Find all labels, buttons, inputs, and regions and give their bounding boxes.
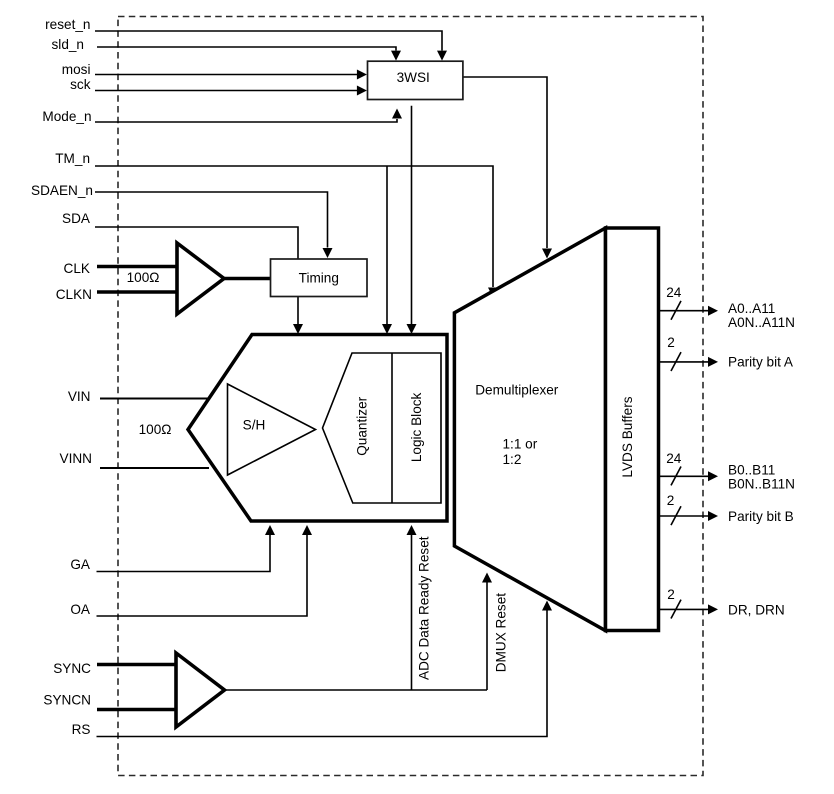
svg-text:CLK: CLK bbox=[64, 261, 90, 276]
svg-text:Mode_n: Mode_n bbox=[42, 109, 91, 124]
svg-text:SDAEN_n: SDAEN_n bbox=[31, 183, 93, 198]
svg-text:VINN: VINN bbox=[60, 451, 92, 466]
svg-text:S/H: S/H bbox=[243, 417, 266, 432]
svg-text:Quantizer: Quantizer bbox=[354, 396, 369, 455]
svg-text:B0N..B11N: B0N..B11N bbox=[728, 477, 795, 492]
svg-text:3WSI: 3WSI bbox=[397, 70, 430, 85]
svg-text:GA: GA bbox=[70, 557, 91, 572]
svg-text:OA: OA bbox=[70, 602, 91, 617]
svg-text:Demultiplexer: Demultiplexer bbox=[475, 382, 559, 397]
svg-text:2: 2 bbox=[667, 587, 675, 602]
svg-text:2: 2 bbox=[667, 335, 675, 350]
svg-text:Parity bit A: Parity bit A bbox=[728, 355, 794, 370]
svg-text:DMUX Reset: DMUX Reset bbox=[493, 593, 508, 673]
svg-text:SYNCN: SYNCN bbox=[43, 693, 91, 708]
svg-text:1:1 or: 1:1 or bbox=[503, 437, 538, 452]
svg-text:Logic Block: Logic Block bbox=[409, 392, 424, 462]
svg-text:24: 24 bbox=[666, 285, 682, 300]
svg-text:RS: RS bbox=[72, 722, 91, 737]
svg-text:mosi: mosi bbox=[62, 62, 91, 77]
svg-text:24: 24 bbox=[666, 451, 682, 466]
svg-text:VIN: VIN bbox=[68, 389, 91, 404]
svg-text:1:2: 1:2 bbox=[503, 452, 522, 467]
svg-text:A0..A11: A0..A11 bbox=[728, 301, 775, 316]
svg-text:reset_n: reset_n bbox=[45, 17, 90, 32]
svg-text:Parity bit B: Parity bit B bbox=[728, 509, 794, 524]
svg-text:B0..B11: B0..B11 bbox=[728, 463, 775, 478]
svg-text:100Ω: 100Ω bbox=[127, 270, 160, 285]
svg-text:LVDS Buffers: LVDS Buffers bbox=[620, 396, 635, 477]
svg-text:sld_n: sld_n bbox=[52, 37, 85, 52]
svg-text:A0N..A11N: A0N..A11N bbox=[728, 315, 795, 330]
svg-text:TM_n: TM_n bbox=[55, 151, 90, 166]
svg-text:100Ω: 100Ω bbox=[139, 422, 172, 437]
svg-text:SDA: SDA bbox=[62, 211, 91, 226]
svg-text:SYNC: SYNC bbox=[53, 661, 91, 676]
svg-text:ADC Data Ready Reset: ADC Data Ready Reset bbox=[417, 536, 432, 680]
svg-text:Timing: Timing bbox=[299, 271, 339, 286]
svg-text:CLKN: CLKN bbox=[56, 287, 92, 302]
svg-text:DR, DRN: DR, DRN bbox=[728, 602, 785, 617]
svg-text:2: 2 bbox=[667, 493, 675, 508]
svg-text:sck: sck bbox=[70, 77, 91, 92]
